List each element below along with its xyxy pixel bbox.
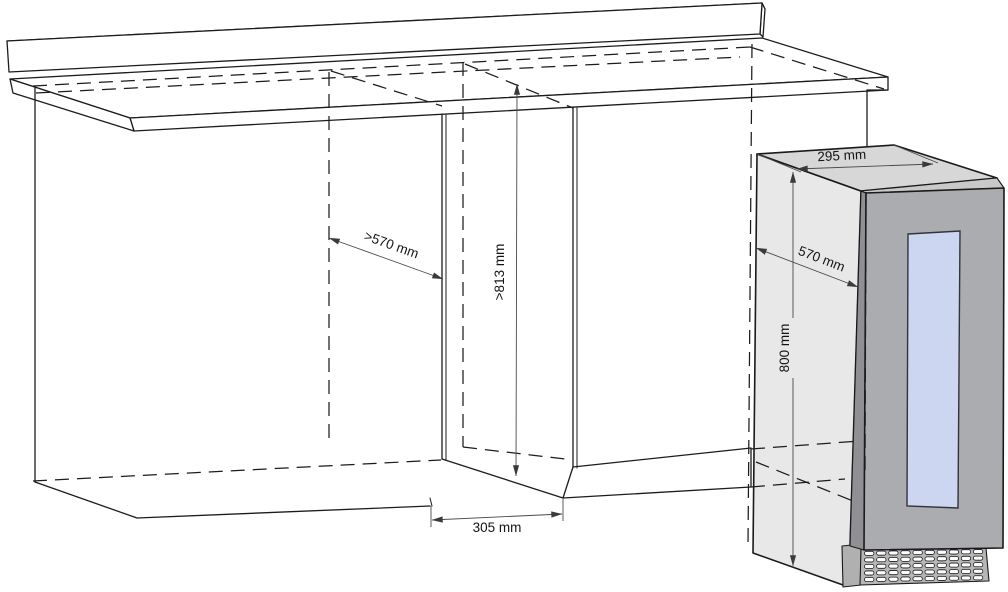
right-cabinet-bottom-edges [563,448,751,498]
hidden-niche-floor-back-edge [463,447,565,459]
dimension-label-appliance-width: 295 mm [817,147,866,165]
dimension-label-niche-height: >813 mm [492,244,507,301]
grille-slot [925,577,934,581]
grille-slot [961,563,970,567]
grille-slot [937,563,946,567]
grille-slot [925,557,934,561]
grille-slot [913,564,922,568]
dimension-line-niche-height [516,84,517,476]
grille-slot [949,550,958,554]
grille-slot [865,571,874,575]
dimension-label-appliance-height: 800 mm [777,324,792,373]
grille-slot [925,550,934,554]
grille-slot [973,550,982,554]
grille-slot [973,576,982,580]
hidden-left-cabinet-bottom-edge [33,460,441,481]
door-glass-panel [907,231,960,508]
grille-slot [949,563,958,567]
grille-slot [961,556,970,560]
left-toe-kick [35,482,430,518]
grille-slot [865,578,874,582]
grille-slot [865,558,874,562]
grille-slot [973,563,982,567]
grille-slot [901,557,910,561]
cooler-plinth-side [842,544,861,587]
grille-slot [973,556,982,560]
grille-slot [925,570,934,574]
grille-slot [877,571,886,575]
grille-slot [889,551,898,555]
grille-slot [877,564,886,568]
cooler-side-panel [753,154,861,585]
grille-slot [949,556,958,560]
grille-slot [937,570,946,574]
grille-slot [889,557,898,561]
grille-slot [961,576,970,580]
grille-slot [913,570,922,574]
grille-slot [949,570,958,574]
niche-floor-edge [442,459,573,498]
base-cabinets [35,88,867,518]
grille-slot [913,551,922,555]
built-in-installation-diagram: >570 mm >813 mm 305 mm 295 mm 570 mm 800… [0,0,1008,592]
grille-slot [961,550,970,554]
grille-slot [889,564,898,568]
grille-slot [925,563,934,567]
grille-slot [901,564,910,568]
grille-slot [901,551,910,555]
grille-slot [937,576,946,580]
grille-slot [949,576,958,580]
grille-slot [877,558,886,562]
diagram-canvas: >570 mm >813 mm 305 mm 295 mm 570 mm 800… [0,0,1008,592]
grille-slot [937,550,946,554]
grille-slot [865,551,874,555]
grille-slot [889,571,898,575]
grille-slot [973,569,982,573]
grille-slot [877,551,886,555]
grille-slot [913,557,922,561]
grille-slot [901,570,910,574]
grille-slot [865,564,874,568]
left-toe-kick-end-edge [430,498,432,506]
dimension-label-niche-width: 305 mm [473,520,522,535]
grille-slot [937,557,946,561]
grille-slot [877,577,886,581]
grille-slot [913,577,922,581]
dimension-label-niche-depth: >570 mm [362,228,420,261]
grille-slot [889,577,898,581]
grille-slot [961,569,970,573]
grille-slot [901,577,910,581]
